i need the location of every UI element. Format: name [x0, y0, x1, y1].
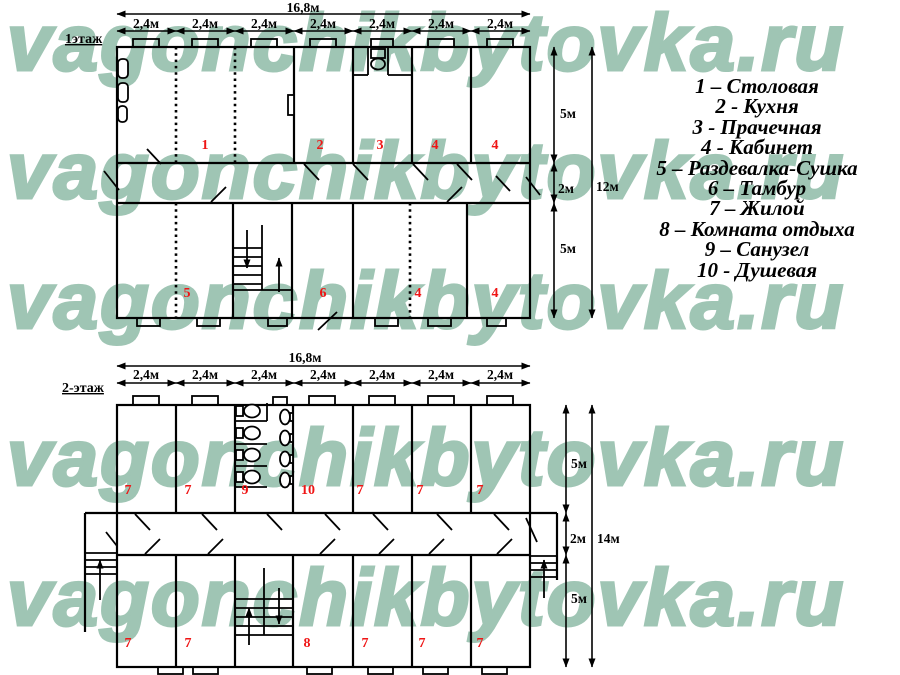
urinal-icon: [280, 452, 293, 467]
floor2-dim-total: 14м: [597, 531, 620, 546]
legend-item: 6 – Тамбур: [612, 178, 900, 198]
room-number: 4: [415, 286, 422, 301]
floor2-toilet-stalls: [235, 403, 293, 488]
room-number: 7: [125, 483, 132, 498]
floor2-doors: [106, 514, 537, 554]
floor2-dim-top: 5м: [571, 456, 587, 471]
room-number: 1: [202, 138, 209, 153]
floor1-dimensions-right: 5м 2м 5м 12м: [554, 47, 619, 318]
room-number: 5: [184, 286, 191, 301]
floor1-dim-bottom: 5м: [560, 241, 576, 256]
toilet-icon: [236, 405, 260, 418]
module-width-label: 2,4м: [428, 367, 454, 382]
legend-item: 2 - Кухня: [612, 96, 900, 116]
legend-item: 10 - Душевая: [612, 260, 900, 280]
floor2-dim-bottom: 5м: [571, 591, 587, 606]
module-width-label: 2,4м: [133, 16, 159, 31]
floor2-walls: [117, 405, 530, 667]
floor2-right-exterior-stairs: [530, 513, 557, 598]
floor2-windows: [133, 396, 513, 674]
radiator-icon: [118, 106, 127, 122]
urinal-icon: [280, 473, 293, 488]
room-number: 3: [377, 138, 384, 153]
room-number: 9: [242, 483, 249, 498]
module-width-label: 2,4м: [251, 16, 277, 31]
floor2-room-numbers: 7 7 9 10 7 7 7 7 7 8 7 7 7: [125, 483, 484, 651]
module-width-label: 2,4м: [369, 367, 395, 382]
toilet-icon: [236, 427, 260, 440]
radiator-icon: [118, 83, 128, 102]
room-number: 6: [320, 286, 327, 301]
legend-item: 5 – Раздевалка-Сушка: [612, 158, 900, 178]
floor1-plan: 16,8м 2,4м 2,4м 2,4м 2,4м 2,4м 2,4м 2,4м…: [65, 0, 619, 330]
floor2-left-exterior-stairs: [85, 513, 117, 632]
room-number: 7: [477, 483, 484, 498]
floor2-dimensions-top: 16,8м 2,4м 2,4м 2,4м 2,4м 2,4м 2,4м 2,4м: [117, 350, 530, 383]
module-width-label: 2,4м: [192, 367, 218, 382]
module-width-label: 2,4м: [487, 367, 513, 382]
room-number: 7: [477, 636, 484, 651]
radiator-icon: [118, 59, 128, 78]
floor2-staircase: [235, 568, 293, 645]
floor1-dimensions-top: 16,8м 2,4м 2,4м 2,4м 2,4м 2,4м 2,4м 2,4м: [117, 0, 530, 31]
room-number: 4: [492, 286, 499, 301]
floor1-fixtures: [118, 49, 385, 122]
room-number: 4: [432, 138, 439, 153]
module-width-label: 2,4м: [369, 16, 395, 31]
room-number: 7: [362, 636, 369, 651]
floor2-plan: 16,8м 2,4м 2,4м 2,4м 2,4м 2,4м 2,4м 2,4м…: [62, 350, 620, 674]
room-number: 8: [304, 636, 311, 651]
room-number: 7: [419, 636, 426, 651]
room-number: 7: [185, 636, 192, 651]
room-number: 7: [125, 636, 132, 651]
module-width-label: 2,4м: [310, 16, 336, 31]
urinal-icon: [280, 431, 293, 446]
room-number: 7: [185, 483, 192, 498]
floor1-dim-mid: 2м: [558, 181, 574, 196]
floor2-dim-mid: 2м: [570, 531, 586, 546]
legend-item: 9 – Санузел: [612, 239, 900, 259]
radiator-icon: [288, 95, 294, 115]
floor1-staircase: [233, 225, 292, 292]
floor1-walls: [117, 47, 530, 318]
urinal-icon: [280, 410, 293, 425]
room-legend: 1 – Столовая 2 - Кухня 3 - Прачечная 4 -…: [612, 76, 900, 280]
room-number: 4: [492, 138, 499, 153]
floor1-doors: [104, 149, 540, 330]
floor1-total-width-label: 16,8м: [287, 0, 320, 15]
legend-item: 1 – Столовая: [612, 76, 900, 96]
module-width-label: 2,4м: [487, 16, 513, 31]
toilet-icon: [236, 449, 260, 462]
toilet-icon: [236, 471, 260, 484]
legend-item: 7 – Жилой: [612, 198, 900, 218]
floor2-total-width-label: 16,8м: [289, 350, 322, 365]
room-number: 7: [357, 483, 364, 498]
legend-item: 8 – Комната отдыха: [612, 219, 900, 239]
module-width-label: 2,4м: [133, 367, 159, 382]
room-number: 2: [317, 138, 324, 153]
floor1-dim-top: 5м: [560, 106, 576, 121]
module-width-label: 2,4м: [428, 16, 454, 31]
legend-item: 4 - Кабинет: [612, 137, 900, 157]
module-width-label: 2,4м: [251, 367, 277, 382]
module-width-label: 2,4м: [310, 367, 336, 382]
floor2-title: 2-этаж: [62, 381, 105, 396]
floor2-dimensions-right: 5м 2м 5м 14м: [566, 405, 620, 667]
module-width-label: 2,4м: [192, 16, 218, 31]
legend-item: 3 - Прачечная: [612, 117, 900, 137]
room-number: 10: [301, 483, 315, 498]
room-number: 7: [417, 483, 424, 498]
floor1-windows: [133, 39, 513, 326]
sink-icon: [371, 49, 385, 70]
floor1-title: 1этаж: [65, 32, 103, 47]
